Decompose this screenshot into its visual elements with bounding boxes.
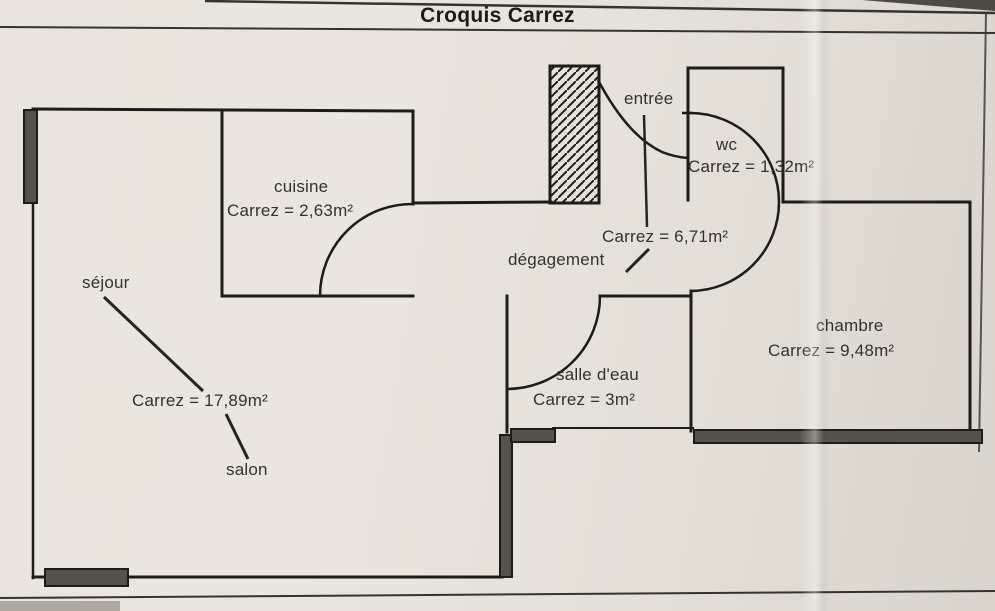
wc-label: wc: [716, 135, 737, 154]
wall-bar-chambre-bottom: [694, 430, 982, 443]
sejour-carrez: Carrez = 17,89m²: [132, 391, 268, 410]
cuisine-carrez: Carrez = 2,63m²: [227, 201, 353, 220]
window-bar-bottom-left: [45, 569, 128, 586]
cuisine-label: cuisine: [274, 177, 328, 196]
floor-plan-drawing: [0, 0, 995, 611]
wall-bar-salle-deau-bottom: [511, 429, 555, 442]
sejour-leader-line: [104, 297, 203, 391]
salle-deau-carrez: Carrez = 3m²: [533, 390, 635, 409]
chambre-label: chambre: [816, 316, 884, 335]
title-underline: [0, 27, 995, 33]
degagement-top-wall: [413, 202, 551, 203]
entree-leader-line: [644, 115, 647, 227]
entrance-door-hatched-block: [550, 66, 599, 203]
page-right-edge: [979, 12, 986, 452]
photo-corner-dark-bottom-left: [0, 601, 120, 611]
page-top-edge: [205, 1, 995, 13]
salon-leader-line: [226, 414, 248, 459]
wall-bar-sejour-right: [500, 435, 512, 577]
salle-deau-label: salle d'eau: [556, 365, 639, 384]
salon-label: salon: [226, 460, 268, 479]
degagement-leader-line: [626, 249, 649, 272]
floor-plan-photo: Croquis Carrez: [0, 0, 995, 611]
degagement-carrez: Carrez = 6,71m²: [602, 227, 728, 246]
photo-corner-dark: [862, 0, 995, 11]
sejour-label: séjour: [82, 273, 130, 292]
entree-label: entrée: [624, 89, 673, 108]
page-edges: [0, 0, 995, 611]
page-bottom-edge: [0, 591, 995, 598]
chambre-carrez: Carrez = 9,48m²: [768, 341, 894, 360]
degagement-label: dégagement: [508, 250, 605, 269]
window-bar-left: [24, 110, 37, 203]
wc-carrez: Carrez = 1,32m²: [688, 157, 814, 176]
